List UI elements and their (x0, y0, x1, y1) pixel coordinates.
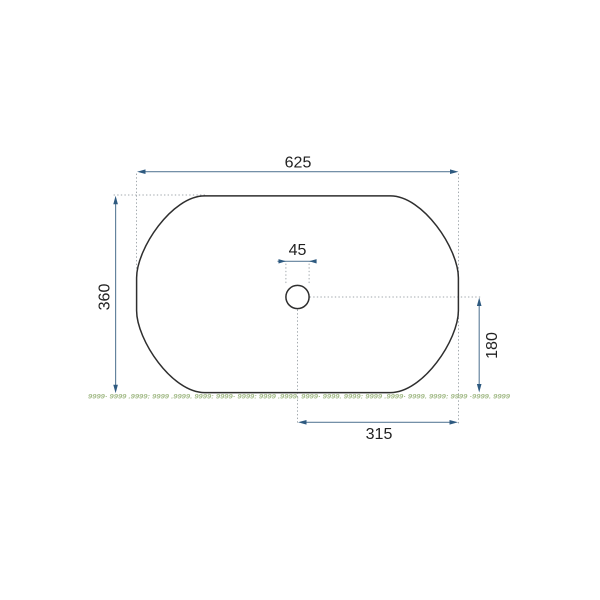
svg-text:180: 180 (484, 332, 501, 359)
svg-text:9999· 9999 .9999: 9999 .9999.: 9999· 9999 .9999: 9999 .9999. 9999: 9999… (88, 394, 510, 401)
svg-text:45: 45 (289, 242, 307, 259)
svg-text:625: 625 (285, 155, 312, 172)
svg-text:360: 360 (97, 284, 114, 311)
svg-text:315: 315 (366, 426, 393, 443)
